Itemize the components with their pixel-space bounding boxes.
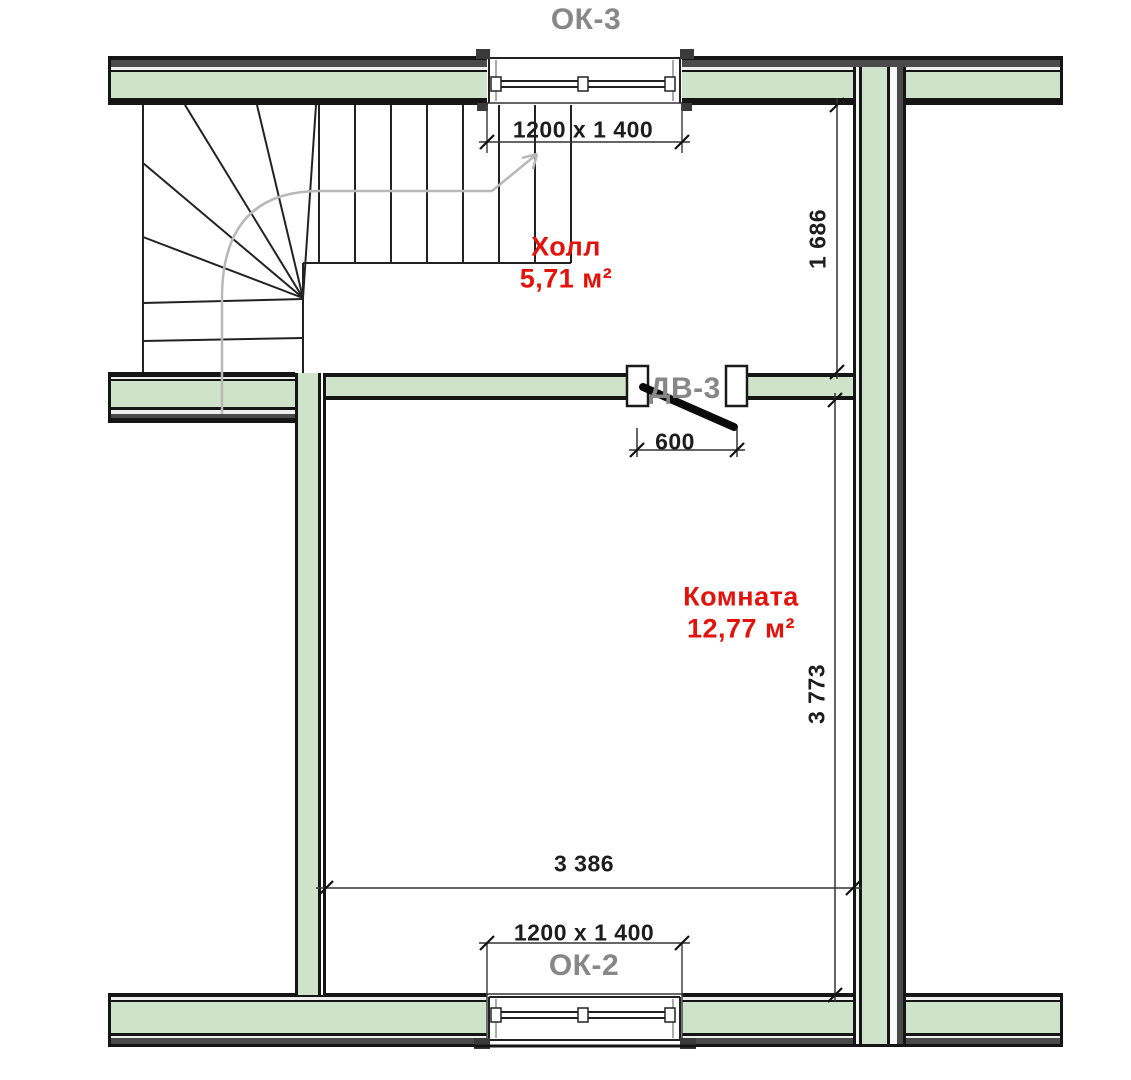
room-left-wall — [295, 373, 326, 995]
window-ok3-size-label: 1200 x 1 400 — [513, 117, 653, 144]
room-area-label: 12,77 м² — [687, 614, 795, 645]
right-party-wall — [853, 67, 906, 1044]
door-width-dimension-label: 600 — [655, 429, 695, 456]
window-ok2-size-label: 1200 x 1 400 — [514, 920, 654, 947]
hall-depth-dimension-label: 1 686 — [805, 209, 832, 269]
window-ok3-marker-label: ОК-3 — [551, 3, 621, 37]
hall-area-label: 5,71 м² — [520, 264, 613, 295]
staircase — [143, 105, 571, 373]
floor-plan: ОК-3 1200 x 1 400 Холл 5,71 м² 1 686 ДВ-… — [0, 0, 1131, 1080]
left-wall-stub — [108, 372, 295, 423]
room-depth-dimension-label: 3 773 — [804, 664, 831, 724]
room-name-label: Комната — [683, 582, 799, 613]
window-ok2-marker-label: ОК-2 — [549, 949, 619, 983]
partition-wall — [295, 373, 853, 400]
floor-plan-drawing — [0, 0, 1131, 1080]
door-dv3-marker-label: ДВ-3 — [649, 372, 721, 406]
room-width-dimension-label: 3 386 — [554, 851, 614, 878]
hall-name-label: Холл — [531, 232, 601, 263]
